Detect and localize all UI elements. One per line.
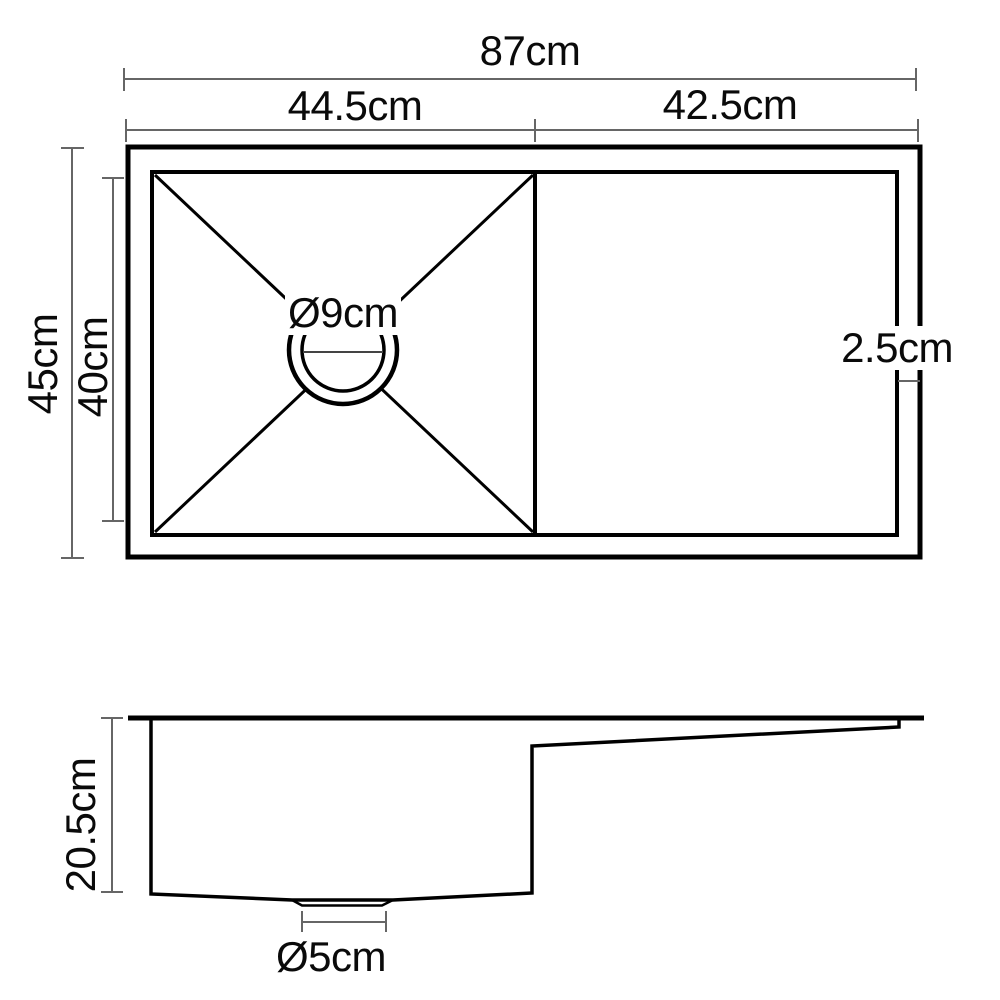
dim-label-rim-width: 2.5cm — [838, 326, 956, 370]
side-view — [101, 718, 924, 932]
sink-technical-drawing: 87cm 44.5cm 42.5cm 45cm 40cm Ø9cm 2.5cm … — [0, 0, 1000, 1000]
top-view — [61, 68, 920, 558]
sink-outer-rect — [128, 147, 920, 557]
dim-label-overall-depth: 45cm — [22, 314, 64, 415]
dimension-side-depth — [101, 718, 123, 892]
dim-label-bowl-depth: 40cm — [72, 317, 114, 418]
dim-label-drainer-width: 42.5cm — [663, 84, 798, 126]
dim-label-bottom-drain-diameter: Ø5cm — [276, 936, 386, 978]
drawing-lines — [0, 0, 1000, 1000]
dim-label-bowl-width: 44.5cm — [288, 85, 423, 127]
dimension-bottom-drain — [302, 911, 386, 932]
side-profile — [151, 718, 899, 900]
dim-label-drain-diameter: Ø9cm — [285, 291, 401, 335]
dim-label-overall-width: 87cm — [480, 30, 581, 72]
sink-inner-rect — [152, 172, 897, 535]
dim-label-side-depth: 20.5cm — [60, 758, 102, 893]
dimension-bowl-drainer-width — [126, 119, 918, 142]
